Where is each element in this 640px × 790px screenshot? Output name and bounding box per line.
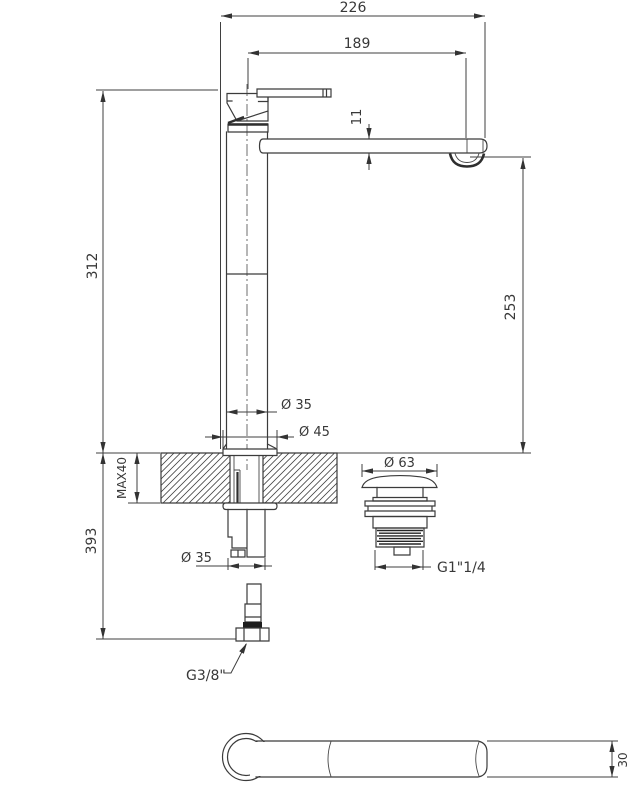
dimension-spout-width: 30 (487, 741, 630, 777)
spout (260, 139, 488, 167)
dim-label-g114: G1"1/4 (437, 560, 486, 576)
top-view-spout-mask (250, 742, 484, 776)
dim-label-d35-bottom: Ø 35 (181, 551, 212, 566)
dimension-spout-height: 253 (337, 157, 531, 453)
dim-label-226: 226 (340, 0, 367, 16)
dimension-below-deck-length: 393 (84, 453, 236, 639)
countertop (161, 453, 337, 503)
waste-cap-dome (362, 476, 437, 488)
dimension-waste-cap-diameter: Ø 63 (362, 456, 437, 477)
dim-label-11: 11 (350, 109, 365, 126)
dim-label-d63: Ø 63 (384, 456, 415, 471)
popup-waste-assembly: Ø 63 G1"1/4 (362, 456, 486, 576)
dim-label-253: 253 (503, 294, 519, 321)
dimension-overall-width: 226 (221, 0, 486, 449)
top-view: 30 (223, 734, 631, 781)
base-flange (223, 449, 277, 456)
dimension-shank-diameter: Ø 35 (181, 551, 272, 570)
faucet-technical-drawing: 226 189 11 312 253 Ø 35 Ø 45 (0, 0, 640, 790)
dimension-waste-thread: G1"1/4 (375, 550, 486, 576)
dim-label-30: 30 (616, 752, 630, 767)
hex-nut (236, 628, 269, 641)
waste-ribs (365, 501, 435, 517)
under-deck-shank (228, 510, 265, 558)
waste-thread-lines (377, 531, 423, 545)
technical-drawing-page: 226 189 11 312 253 Ø 35 Ø 45 (0, 0, 640, 790)
locknut-washer (223, 503, 277, 510)
hatch-lines (161, 453, 230, 503)
dim-label-d45: Ø 45 (299, 425, 330, 440)
faucet-column (223, 132, 277, 449)
waste-neck (373, 488, 427, 502)
waste-body (373, 517, 427, 529)
dim-label-g38: G3/8" (186, 668, 226, 684)
dim-label-d35-top: Ø 35 (281, 398, 312, 413)
handle-body (227, 94, 268, 122)
dimension-body-diameter: Ø 35 (227, 398, 312, 415)
handle-lever (257, 89, 331, 102)
dim-label-393: 393 (84, 528, 100, 555)
countertop-hatch-left (161, 453, 230, 503)
handle-assembly (227, 89, 331, 132)
hose-collar-band (243, 622, 262, 628)
aerator (450, 154, 484, 167)
countertop-hatch-right (263, 453, 337, 503)
dimension-height-above-deck: 312 (85, 90, 218, 453)
hatch-lines (263, 453, 337, 503)
dim-label-max40: MAX40 (115, 457, 129, 499)
supply-thread-callout: G3/8" (186, 643, 247, 684)
dim-label-312: 312 (85, 253, 101, 280)
dim-label-189: 189 (344, 36, 371, 52)
supply-hose-connector (236, 584, 269, 641)
dimension-deck-thickness: MAX40 (115, 453, 160, 503)
waste-bottom-nub (394, 547, 410, 555)
